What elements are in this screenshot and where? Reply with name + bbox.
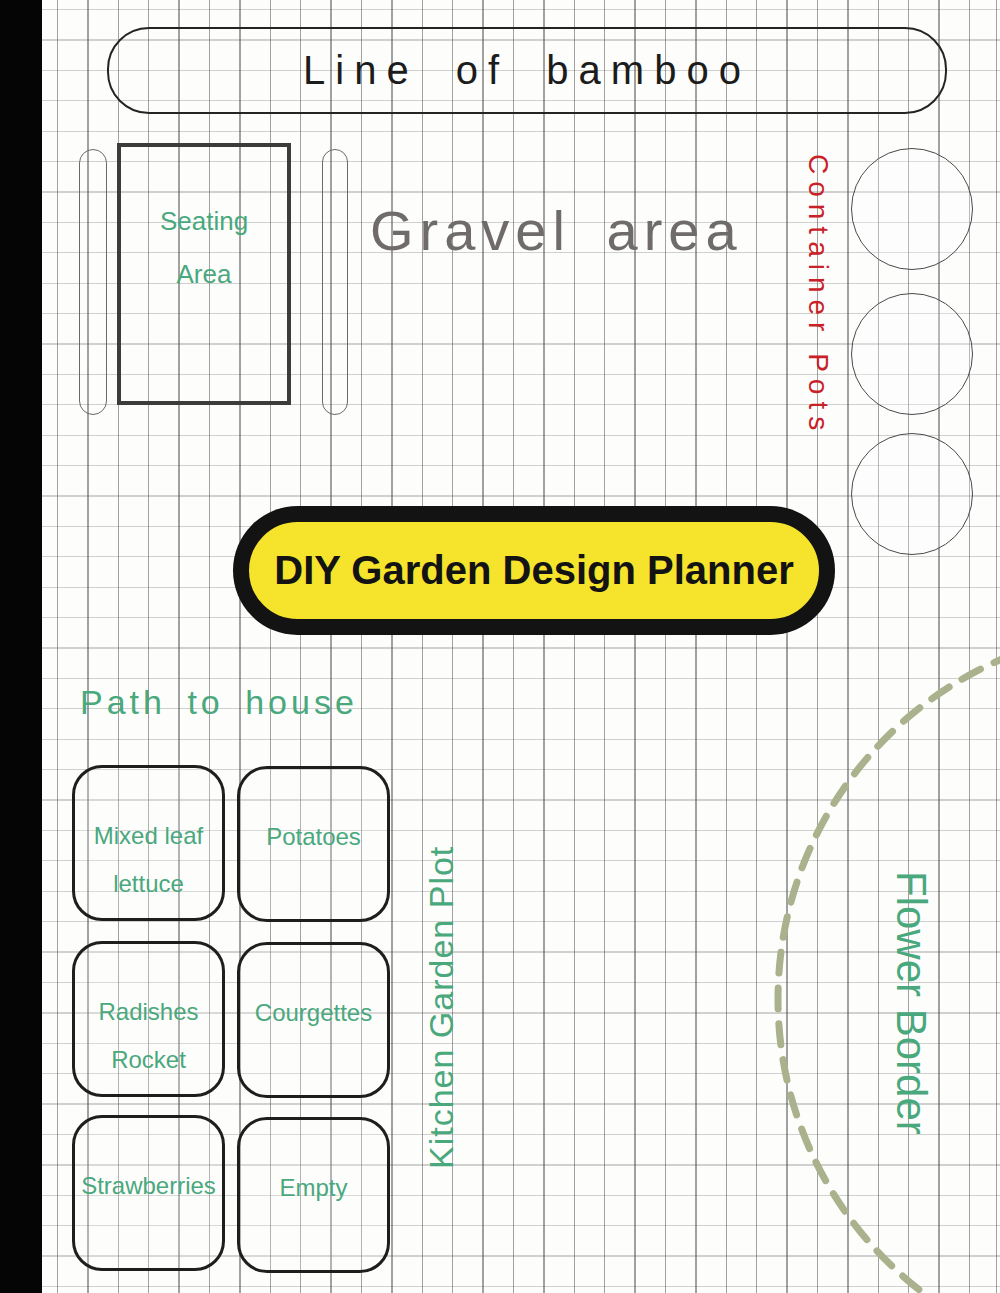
kitchen-garden-plot-label: Kitchen Garden Plot [418,845,464,1169]
bed-label: Courgettes [255,989,372,1037]
seating-area-outline: Seating Area [117,143,291,405]
bed-label: lettuce [113,860,184,908]
title-badge-label: DIY Garden Design Planner [274,548,793,593]
seating-area-label-line1: Seating [160,195,248,248]
bed-label: Strawberries [81,1162,216,1210]
bed-mixed-leaf-lettuce: Mixed leaf lettuce [72,765,225,921]
line-of-bamboo-outline: Line of bamboo [107,27,947,114]
bed-label: Radishes [98,988,198,1036]
seating-area-label-line2: Area [177,248,232,301]
gravel-area-label: Gravel area [370,198,743,263]
book-spine [0,0,42,1293]
bed-label: Mixed leaf [94,812,203,860]
bed-label: Rocket [111,1036,186,1084]
title-badge: DIY Garden Design Planner [234,507,834,634]
container-pot-circle-3 [851,433,973,555]
path-to-house-label: Path to house [80,683,358,722]
flower-border-label: Flower Border [886,866,936,1140]
bed-radishes-rocket: Radishes Rocket [72,941,225,1097]
container-pot-circle-2 [851,293,973,415]
bench-right [322,149,348,415]
bench-left [79,149,107,415]
bed-label: Potatoes [266,813,361,861]
garden-planner-cover: Line of bamboo Seating Area Gravel area … [0,0,1000,1293]
bed-label: Empty [279,1164,347,1212]
bed-courgettes: Courgettes [237,942,390,1098]
bed-potatoes: Potatoes [237,766,390,922]
bed-strawberries: Strawberries [72,1115,225,1271]
container-pot-circle-1 [851,148,973,270]
bed-empty: Empty [237,1117,390,1273]
container-pots-label: Container Pots [798,148,838,444]
line-of-bamboo-label: Line of bamboo [303,48,751,93]
